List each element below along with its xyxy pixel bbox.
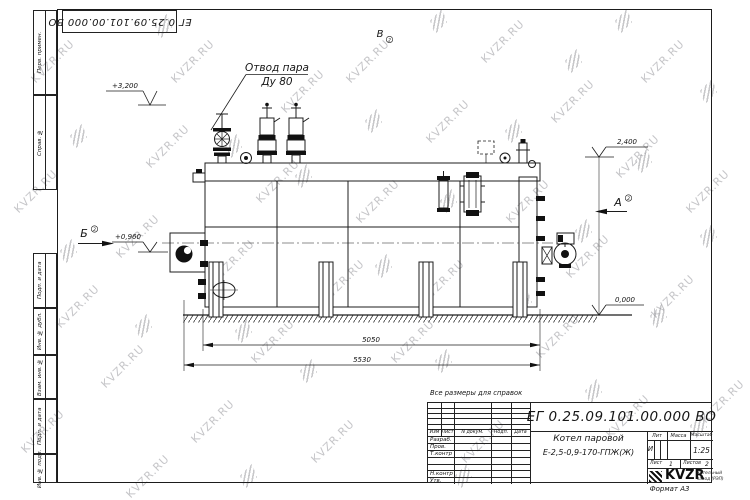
burner — [170, 233, 208, 272]
kvzr-logo-sub2: завод (РЭП) — [697, 477, 724, 482]
water-level-gauge-1 — [437, 171, 450, 212]
view-letter: В — [377, 29, 384, 40]
col-list: Лист — [441, 430, 454, 435]
list-value: 1 — [669, 461, 673, 468]
kvzr-logo-sub1: Котельный — [697, 471, 722, 476]
masshtab-header: Масштаб — [690, 433, 713, 438]
elevation-mark-burner: +0,960 — [112, 233, 168, 252]
elevation-value: +3,200 — [112, 82, 138, 90]
col-podp: Подп. — [491, 430, 511, 435]
col-izm: Изм — [428, 430, 441, 435]
lit-value: И — [647, 445, 654, 453]
view-sheet-ref: 2 — [388, 38, 391, 44]
dimension-value: 5530 — [353, 356, 371, 364]
title-block: Изм Лист N докум. Подп. Дата Разраб. Про… — [427, 402, 712, 483]
callout-line2: Ду 80 — [260, 76, 292, 88]
view-label-v: В 2 — [377, 29, 393, 44]
row-tkontr: Т.контр — [430, 451, 452, 457]
title-doc-number: ЕГ 0.25.09.101.00.000 ВО — [530, 403, 713, 431]
feed-pump — [542, 233, 576, 268]
elevation-mark-ground: 0,000 — [592, 296, 644, 315]
callout-line1: Отвод пара — [245, 62, 309, 74]
elevation-value: 2,400 — [617, 138, 638, 146]
row-utv: Утв. — [430, 478, 442, 484]
listov-value: 2 — [705, 461, 709, 468]
masshtab-value: 1:25 — [690, 446, 713, 455]
listov-label: Листов — [683, 461, 701, 466]
view-sheet-ref: 2 — [627, 196, 630, 202]
steam-outlet-valve — [213, 114, 231, 163]
list-label: Лист — [650, 461, 662, 466]
drawing-sheet: KVZR.RUKVZR.RUKVZR.RUKVZR.RUKVZR.RUKVZR.… — [0, 0, 750, 500]
elevation-mark-top: +3,200 — [106, 82, 166, 105]
view-label-a: А 2 — [595, 195, 632, 214]
col-ndokum: N докум. — [454, 430, 491, 435]
safety-valve-1 — [257, 103, 280, 163]
safety-valve-2 — [286, 103, 309, 163]
format-label: Формат А3 — [627, 485, 712, 493]
col-data: Дата — [511, 430, 530, 435]
dimension-value: 5050 — [362, 336, 380, 344]
reference-note: Все размеры для справок — [430, 389, 522, 397]
massa-header: Масса — [667, 433, 690, 439]
product-name-line1: Котел паровой — [530, 434, 647, 444]
kvzr-logo-icon — [649, 471, 662, 482]
deck-valve-small — [500, 153, 510, 163]
view-letter: А — [613, 196, 622, 209]
view-label-b: Б 2 — [78, 226, 114, 246]
ground-line — [183, 315, 632, 323]
front-plate-fitting — [193, 169, 205, 182]
view-letter: Б — [80, 227, 88, 240]
water-level-gauge-2 — [460, 172, 485, 216]
product-name-line2: Е-2,5-0,9-170-ГПЖ(Ж) — [530, 448, 647, 457]
row-razrab: Разраб. — [430, 437, 452, 443]
deck-hatch-dashed — [478, 141, 494, 163]
deck-dome — [241, 153, 252, 164]
elevation-value: 0,000 — [615, 296, 636, 304]
row-prov: Пров. — [430, 444, 446, 450]
elevation-mark-right: 2,400 — [585, 138, 648, 157]
boiler-body — [162, 157, 599, 315]
lit-header: Лит — [647, 433, 667, 439]
support-legs — [209, 262, 527, 317]
elevation-value: +0,960 — [115, 233, 141, 241]
row-nkontr: Н.контр — [430, 471, 453, 477]
view-sheet-ref: 2 — [93, 227, 96, 233]
